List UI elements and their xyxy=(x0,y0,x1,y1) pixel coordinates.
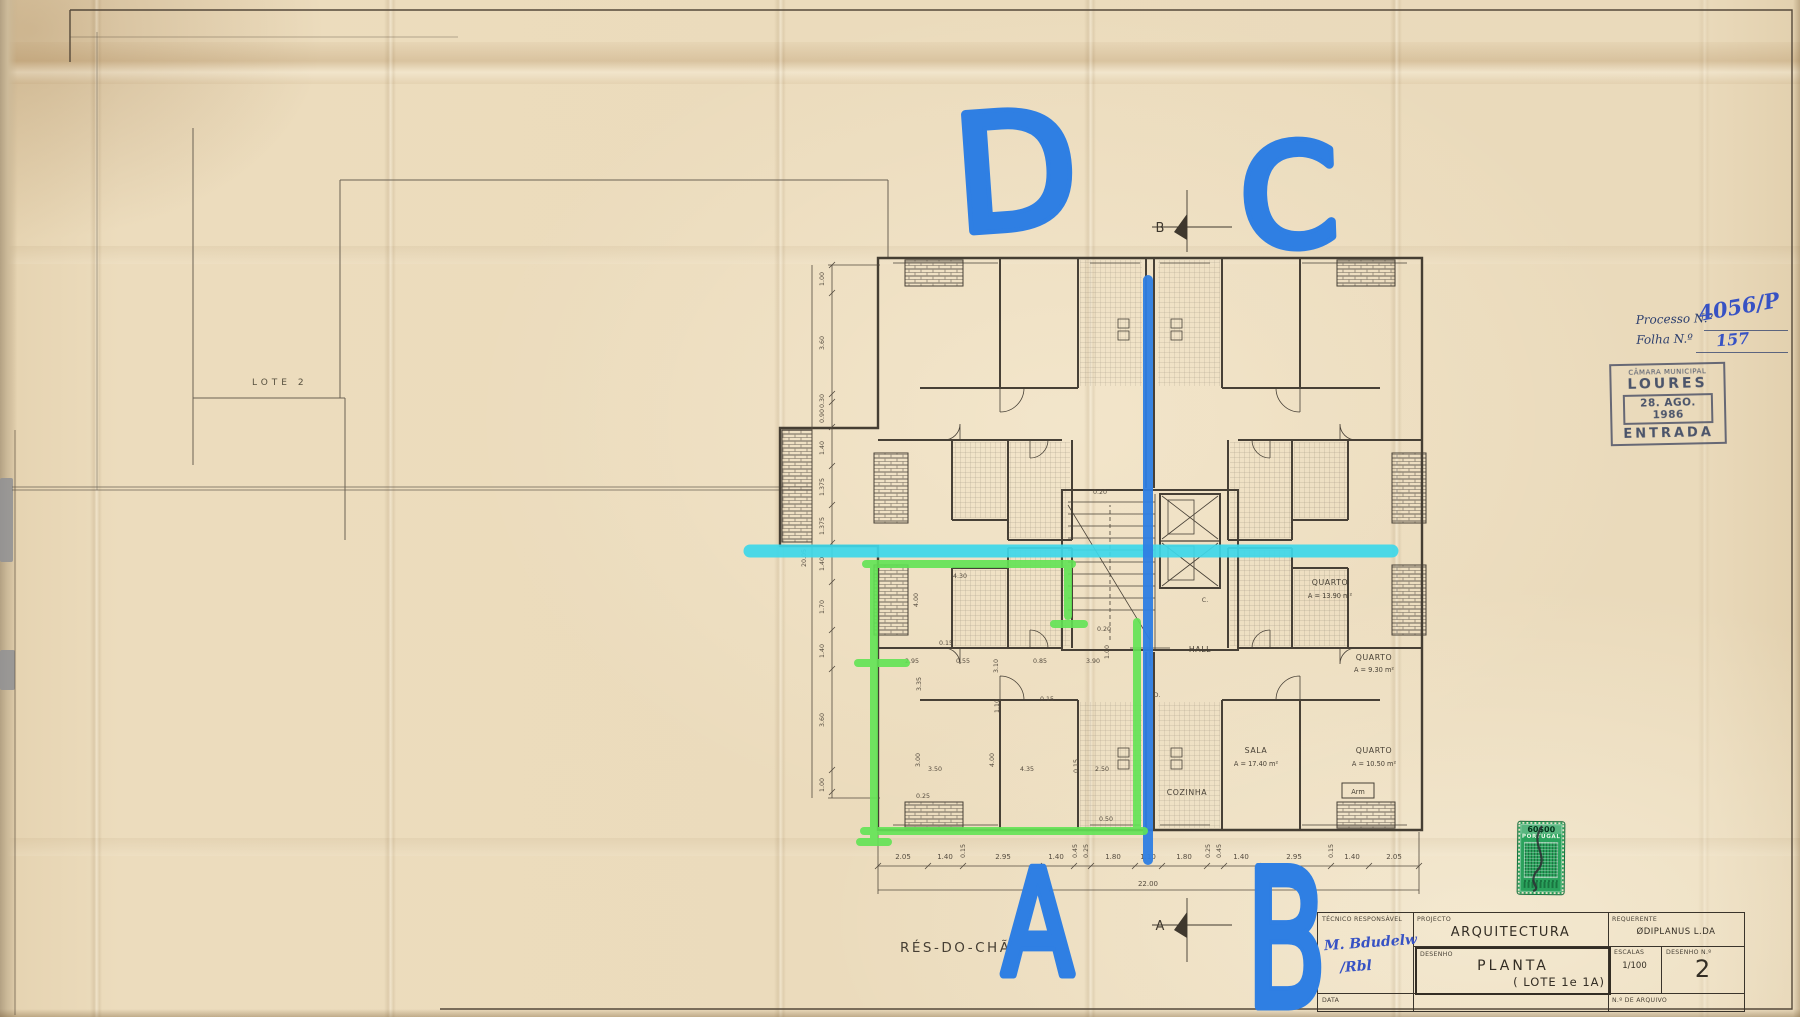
green-right-upper-line xyxy=(1054,564,1084,624)
annotation-letter-a: A xyxy=(1002,840,1073,1009)
annotation-letter-c: C xyxy=(1237,115,1340,281)
annotation-letter-d: D xyxy=(948,75,1084,270)
pen-squiggle xyxy=(1533,826,1542,891)
green-outline xyxy=(858,564,1144,842)
green-left-line xyxy=(860,564,888,842)
hand-annotations: D C A B xyxy=(0,0,1800,1017)
annotation-letter-b: B xyxy=(1246,831,1327,1017)
scanned-drawing-sheet: LOTE 2 xyxy=(0,0,1800,1017)
